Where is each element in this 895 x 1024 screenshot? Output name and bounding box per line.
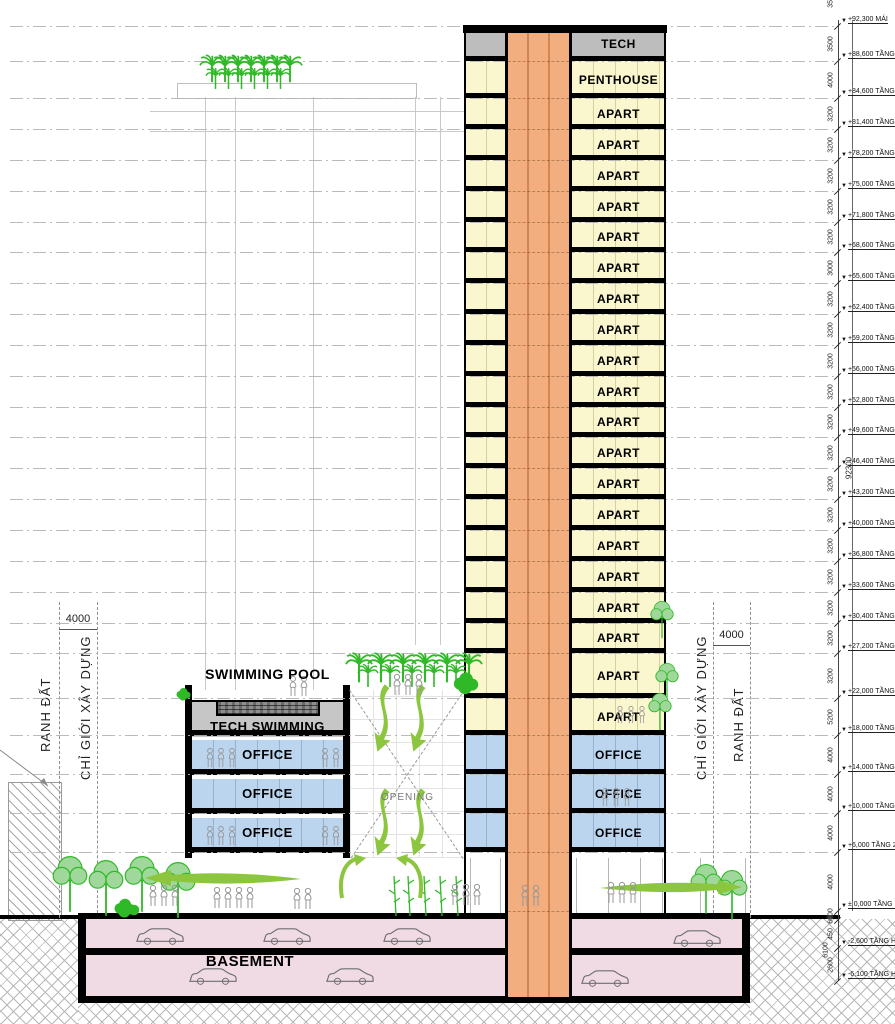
core-level-line <box>508 813 569 814</box>
elevation-label: +40,000 TẦNG 11 <box>848 520 895 528</box>
tower-core <box>505 33 572 997</box>
basement-wall-right <box>742 913 750 1003</box>
car-icon <box>672 928 722 947</box>
shrub-icon <box>453 668 479 696</box>
core-level-line <box>508 283 569 284</box>
person-icon <box>414 674 424 696</box>
level-line <box>10 499 838 500</box>
floor-label: APART <box>597 385 640 399</box>
person-icon <box>600 788 610 807</box>
dimension-value: 4000 <box>828 786 835 802</box>
core-level-line <box>508 314 569 315</box>
elevation-label: +75,000 TẦNG 22 <box>848 181 895 189</box>
tower-slab <box>572 556 665 561</box>
elevation-flag-icon: ▼ <box>841 522 847 528</box>
elevation-flag-icon: ▼ <box>841 645 847 651</box>
level-line <box>10 222 838 223</box>
level-line <box>10 592 838 593</box>
floor-label: APART <box>597 446 640 460</box>
core-level-line <box>508 407 569 408</box>
person-icon <box>216 826 226 846</box>
level-line <box>10 437 838 438</box>
tower-slab <box>572 525 665 530</box>
dimension-value: 3200 <box>828 291 835 307</box>
elevation-label: +92,300 MÁI <box>848 16 888 24</box>
person-icon <box>320 826 330 846</box>
tower-slab <box>465 847 505 852</box>
core-level-line <box>508 345 569 346</box>
floor-label: APART <box>597 415 640 429</box>
tower-slab <box>465 186 505 191</box>
elevation-label: +56,000 TẦNG 16 <box>848 366 895 374</box>
elevation-label: +43,200 TẦNG 12 <box>848 489 895 497</box>
elevation-marker: ▼+18,000 TẦNG 5 <box>841 725 895 733</box>
dimension-value: 3500 <box>828 36 835 52</box>
elevation-flag-icon: ▼ <box>841 973 847 979</box>
dimension-value: 3200 <box>828 106 835 122</box>
tower-slab <box>465 56 505 61</box>
core-level-line <box>508 735 569 736</box>
tower-slab <box>572 186 665 191</box>
tower-slab <box>465 587 505 592</box>
tower-slab <box>465 155 505 160</box>
dimension-value: 3200 <box>828 168 835 184</box>
elevation-marker: ▼+46,400 TẦNG 13 <box>841 458 895 466</box>
person-icon <box>637 706 647 724</box>
floor-label: APART <box>597 631 640 645</box>
tower-slab <box>465 808 505 813</box>
dimension-value: 3200 <box>828 384 835 400</box>
elevation-marker: ▼+84,600 TẦNG 25 <box>841 88 895 96</box>
core-level-line <box>508 98 569 99</box>
floor-label: PENTHOUSE <box>579 73 658 87</box>
person-icon <box>615 706 625 724</box>
palm-tree-icon <box>271 62 290 95</box>
elevation-marker: ▼+71,800 TẦNG 21 <box>841 212 895 220</box>
person-icon <box>245 884 255 912</box>
elevation-marker: ▼+27,200 TẦNG 7 <box>841 643 895 651</box>
elevation-label: ± 0,000 TẦNG 1 <box>848 901 895 909</box>
floor-label: OFFICE <box>595 826 642 840</box>
core-level-line <box>508 530 569 531</box>
level-line <box>10 314 838 315</box>
person-icon <box>392 674 402 696</box>
core-level-line <box>508 376 569 377</box>
balcony-tree-icon <box>650 598 674 640</box>
tower-slab <box>572 371 665 376</box>
level-line <box>10 774 838 775</box>
elevation-flag-icon: ▼ <box>841 940 847 946</box>
elevation-flag-icon: ▼ <box>841 766 847 772</box>
opening-label: OPENING <box>352 792 463 803</box>
elevation-marker: ▼+68,600 TẦNG 20 <box>841 242 895 250</box>
floor-label: APART <box>597 323 640 337</box>
elevation-marker: ▼+43,200 TẦNG 12 <box>841 489 895 497</box>
basement-total-dim: 6100 <box>823 942 830 958</box>
tower-slab <box>572 247 665 252</box>
level-line <box>10 407 838 408</box>
person-icon <box>205 826 215 846</box>
tower-slab <box>465 309 505 314</box>
core-level-line <box>508 129 569 130</box>
person-icon <box>622 788 632 807</box>
floor-label: APART <box>597 669 640 683</box>
tower-edge-right <box>664 25 666 913</box>
level-line <box>10 98 838 99</box>
elevation-marker: ▼+49,600 TẦNG 14 <box>841 427 895 435</box>
elevation-marker: ▼+22,000 TẦNG 6 <box>841 688 895 696</box>
elevation-marker: ▼+92,300 MÁI <box>841 16 888 24</box>
floor-label: APART <box>597 138 640 152</box>
ground-line-left <box>0 915 78 919</box>
car-icon <box>262 926 312 945</box>
tower-slab <box>572 93 665 98</box>
floor-label: APART <box>597 292 640 306</box>
ghost-column <box>313 97 314 690</box>
tower-slab <box>572 847 665 852</box>
core-level-line <box>508 160 569 161</box>
elevation-marker: ▼+59,200 TẦNG 17 <box>841 335 895 343</box>
dimension-value: 3200 <box>828 507 835 523</box>
elevation-flag-icon: ▼ <box>841 244 847 250</box>
airflow-curl-icon <box>396 854 426 902</box>
person-icon <box>617 878 627 908</box>
basement-wall-left <box>78 913 86 1003</box>
core-level-line <box>508 468 569 469</box>
elevation-marker: ▼+75,000 TẦNG 22 <box>841 181 895 189</box>
elevation-flag-icon: ▼ <box>841 306 847 312</box>
balcony-tree-icon <box>648 690 672 732</box>
core-level-line <box>508 191 569 192</box>
elevation-label: +65,600 TẦNG 19 <box>848 273 895 281</box>
tower-slab <box>572 309 665 314</box>
person-icon <box>234 884 244 912</box>
car-icon <box>580 968 630 987</box>
person-icon <box>626 706 636 724</box>
dimension-value: 3500 <box>828 0 835 8</box>
person-icon <box>170 882 180 910</box>
dimension-value: 3200 <box>828 600 835 616</box>
core-level-line <box>508 623 569 624</box>
elevation-label: +22,000 TẦNG 6 <box>848 688 895 696</box>
core-footing <box>502 997 575 1003</box>
dimension-value: 3000 <box>828 260 835 276</box>
level-line <box>10 252 838 253</box>
setback-dimline-right <box>713 645 750 646</box>
elevation-flag-icon: ▼ <box>841 368 847 374</box>
level-line <box>10 191 838 192</box>
tower-slab <box>572 769 665 774</box>
ground-line-right <box>750 915 840 919</box>
elevation-label: +71,800 TẦNG 21 <box>848 212 895 220</box>
dimension-value: 3200 <box>828 569 835 585</box>
core-level-line <box>508 561 569 562</box>
core-level-line <box>508 437 569 438</box>
elevation-flag-icon: ▼ <box>841 53 847 59</box>
floor-label: APART <box>597 601 640 615</box>
tower-slab <box>465 525 505 530</box>
elevation-flag-icon: ▼ <box>841 727 847 733</box>
floor-label: APART <box>597 169 640 183</box>
elevation-flag-icon: ▼ <box>841 615 847 621</box>
elevation-label: +10,000 TẦNG 3 <box>848 803 895 811</box>
tower-slab <box>465 93 505 98</box>
elevation-label: -2,600 TẦNG HẦM 1 <box>848 938 895 946</box>
dimension-value: 3200 <box>828 538 835 554</box>
ghost-column <box>440 97 441 645</box>
elevation-marker: ▼-2,600 TẦNG HẦM 1 <box>841 938 895 946</box>
dimension-value: 3200 <box>828 199 835 215</box>
elevation-label: +18,000 TẦNG 5 <box>848 725 895 733</box>
dimension-value: 4000 <box>828 72 835 88</box>
dimension-value: 3200 <box>828 668 835 684</box>
elevation-label: +36,800 TẦNG 10 <box>848 551 895 559</box>
ghost-line <box>150 111 465 112</box>
ghost-column <box>205 97 206 690</box>
elevation-label: +59,200 TẦNG 17 <box>848 335 895 343</box>
ground-glass-mullion <box>576 858 577 913</box>
elevation-marker: ▼+78,200 TẦNG 23 <box>841 150 895 158</box>
elevation-flag-icon: ▼ <box>841 491 847 497</box>
elevation-marker: ▼+36,800 TẦNG 10 <box>841 551 895 559</box>
tower-slab <box>465 463 505 468</box>
ghost-line <box>150 131 465 132</box>
tree-icon <box>52 852 88 914</box>
car-icon <box>135 926 185 945</box>
swimming-pool-label: SWIMMING POOL <box>192 666 343 682</box>
tower-slab <box>572 340 665 345</box>
tower-slab <box>465 217 505 222</box>
elevation-marker: ▼+81,400 TẦNG 24 <box>841 119 895 127</box>
floor-label: APART <box>597 200 640 214</box>
basement-label: BASEMENT <box>160 953 340 970</box>
dimension-value: 3200 <box>828 353 835 369</box>
tech-swimming-label: TECH SWIMMING <box>192 719 343 734</box>
boundary-label-chi-gioi-left: CHỈ GIỚI XÂY DỰNG <box>78 618 93 798</box>
core-level-line <box>508 499 569 500</box>
person-icon <box>628 878 638 908</box>
person-icon <box>216 748 226 768</box>
elevation-marker: ▼± 0,000 TẦNG 1 <box>841 901 895 909</box>
dimension-value: 5200 <box>828 709 835 725</box>
elevation-flag-icon: ▼ <box>841 183 847 189</box>
elevation-label: +46,400 TẦNG 13 <box>848 458 895 466</box>
tower-edge-left <box>464 25 466 913</box>
person-icon <box>331 826 341 846</box>
property-line-right <box>750 602 751 918</box>
tower-slab <box>465 556 505 561</box>
elevation-marker: ▼+88,600 TẦNG KỸ 1 <box>841 51 895 59</box>
dimension-value: 450 <box>828 928 835 940</box>
tower-slab <box>572 217 665 222</box>
dimension-value: 3200 <box>828 322 835 338</box>
shrub-icon <box>176 686 191 701</box>
level-line <box>10 376 838 377</box>
floor-label: APART <box>597 508 640 522</box>
tower-slab <box>572 648 665 653</box>
elevation-marker: ▼+62,400 TẦNG 18 <box>841 304 895 312</box>
elevation-flag-icon: ▼ <box>841 275 847 281</box>
tower-slab <box>465 278 505 283</box>
person-icon <box>520 882 530 910</box>
elevation-label: +78,200 TẦNG 23 <box>848 150 895 158</box>
core-level-line <box>508 222 569 223</box>
elevation-label: +27,200 TẦNG 7 <box>848 643 895 651</box>
dimension-value: 6000 <box>828 908 835 924</box>
setback-dimline-left <box>59 629 97 630</box>
elevation-flag-icon: ▼ <box>841 584 847 590</box>
elevation-flag-icon: ▼ <box>841 399 847 405</box>
tower-slab <box>465 340 505 345</box>
floor-label: APART <box>597 107 640 121</box>
elevation-marker: ▼+10,000 TẦNG 3 <box>841 803 895 811</box>
tower-slab <box>572 808 665 813</box>
airflow-curl-icon <box>336 854 366 902</box>
elevation-marker: ▼+14,000 TẦNG 4 <box>841 764 895 772</box>
ghost-column <box>415 97 416 645</box>
core-level-line <box>508 852 569 853</box>
elevation-flag-icon: ▼ <box>841 805 847 811</box>
level-line <box>10 345 838 346</box>
dimension-value: 3200 <box>828 630 835 646</box>
person-icon <box>303 886 313 912</box>
core-level-line <box>508 774 569 775</box>
building-section-drawing: RANH ĐẤT CHỈ GIỚI XÂY DỰNG CHỈ GIỚI XÂY … <box>0 0 895 1024</box>
elevation-marker: ▼+40,000 TẦNG 11 <box>841 520 895 528</box>
person-icon <box>606 878 616 908</box>
dimension-value: 3200 <box>828 445 835 461</box>
ground-hatch-under-basement <box>78 1003 750 1024</box>
elevation-label: -6,100 TẦNG HẦM 2 <box>848 971 895 979</box>
dimension-line <box>838 20 839 981</box>
dimension-value: 2600 <box>828 957 835 973</box>
elevation-flag-icon: ▼ <box>841 903 847 909</box>
elevation-label: +49,600 TẦNG 14 <box>848 427 895 435</box>
tower-slab <box>572 56 665 61</box>
floor-label: APART <box>597 230 640 244</box>
tower-slab <box>465 247 505 252</box>
floor-label: TECH <box>601 37 636 51</box>
tower-slab <box>572 494 665 499</box>
person-icon <box>223 884 233 912</box>
elevation-flag-icon: ▼ <box>841 214 847 220</box>
elevation-marker: ▼+56,000 TẦNG 16 <box>841 366 895 374</box>
dimension-value: 3200 <box>828 137 835 153</box>
level-line <box>10 468 838 469</box>
tower-slab <box>465 432 505 437</box>
person-icon <box>450 880 460 910</box>
level-line <box>10 26 838 27</box>
level-line <box>10 160 838 161</box>
person-icon <box>531 882 541 910</box>
person-icon <box>331 748 341 768</box>
core-level-line <box>508 252 569 253</box>
elevation-flag-icon: ▼ <box>841 429 847 435</box>
person-icon <box>472 880 482 910</box>
tower-slab <box>572 463 665 468</box>
tower-slab <box>572 124 665 129</box>
person-icon <box>403 674 413 696</box>
tower-slab <box>572 155 665 160</box>
tower-slab <box>465 371 505 376</box>
person-icon <box>292 886 302 912</box>
boundary-label-chi-gioi-right: CHỈ GIỚI XÂY DỰNG <box>694 618 709 798</box>
elevation-label: +68,600 TẦNG 20 <box>848 242 895 250</box>
ground-hatch-left <box>0 919 78 1024</box>
tower-slab <box>572 278 665 283</box>
elevation-marker: ▼+30,400 TẦNG 8 <box>841 613 895 621</box>
tower-slab <box>465 769 505 774</box>
dimension-value: 3200 <box>828 414 835 430</box>
elevation-label: +6,000 TẦNG 2 <box>848 842 895 850</box>
level-line <box>10 623 838 624</box>
tower-slab <box>465 494 505 499</box>
tower-slab <box>572 432 665 437</box>
elevation-marker: ▼+6,000 TẦNG 2 <box>841 842 895 850</box>
person-icon <box>212 884 222 912</box>
tower-roof-slab <box>463 25 667 33</box>
elevation-label: +62,400 TẦNG 18 <box>848 304 895 312</box>
level-line <box>10 283 838 284</box>
dimension-value: 3200 <box>828 476 835 492</box>
elevation-label: +33,600 TẦNG 9 <box>848 582 895 590</box>
elevation-label: +14,000 TẦNG 4 <box>848 764 895 772</box>
floor-label: APART <box>597 477 640 491</box>
elevation-label: +30,400 TẦNG 8 <box>848 613 895 621</box>
elevation-flag-icon: ▼ <box>841 690 847 696</box>
elevation-flag-icon: ▼ <box>841 460 847 466</box>
elevation-flag-icon: ▼ <box>841 90 847 96</box>
elevation-marker: ▼+65,600 TẦNG 19 <box>841 273 895 281</box>
elevation-label: +52,800 TẦNG 15 <box>848 397 895 405</box>
basement-bottom-slab <box>78 996 750 1003</box>
core-level-line <box>508 653 569 654</box>
swimming-pool-water <box>216 700 320 716</box>
setback-dim-right: 4000 <box>713 629 750 641</box>
person-icon <box>227 748 237 768</box>
person-icon <box>461 880 471 910</box>
dimension-value: 4000 <box>828 747 835 763</box>
elevation-flag-icon: ▼ <box>841 18 847 24</box>
elevation-label: +88,600 TẦNG KỸ 1 <box>848 51 895 59</box>
leader-arrow-icon <box>0 748 58 794</box>
dimension-value: 3200 <box>828 229 835 245</box>
level-line <box>10 129 838 130</box>
core-level-line <box>508 911 569 912</box>
person-icon <box>227 826 237 846</box>
elevation-flag-icon: ▼ <box>841 337 847 343</box>
person-icon <box>320 748 330 768</box>
person-icon <box>148 882 158 910</box>
tower-slab <box>465 124 505 129</box>
elevation-flag-icon: ▼ <box>841 844 847 850</box>
elevation-marker: ▼+52,800 TẦNG 15 <box>841 397 895 405</box>
person-icon <box>205 748 215 768</box>
person-icon <box>611 788 621 807</box>
core-level-line <box>508 698 569 699</box>
core-level-line <box>508 592 569 593</box>
person-icon <box>159 882 169 910</box>
elevation-marker: ▼+33,600 TẦNG 9 <box>841 582 895 590</box>
tower-slab <box>465 730 505 735</box>
core-level-line <box>508 61 569 62</box>
tower-slab <box>572 587 665 592</box>
tower-slab <box>572 402 665 407</box>
elevation-flag-icon: ▼ <box>841 553 847 559</box>
ghost-column <box>235 97 236 690</box>
elevation-flag-icon: ▼ <box>841 152 847 158</box>
elevation-marker: ▼-6,100 TẦNG HẦM 2 <box>841 971 895 979</box>
